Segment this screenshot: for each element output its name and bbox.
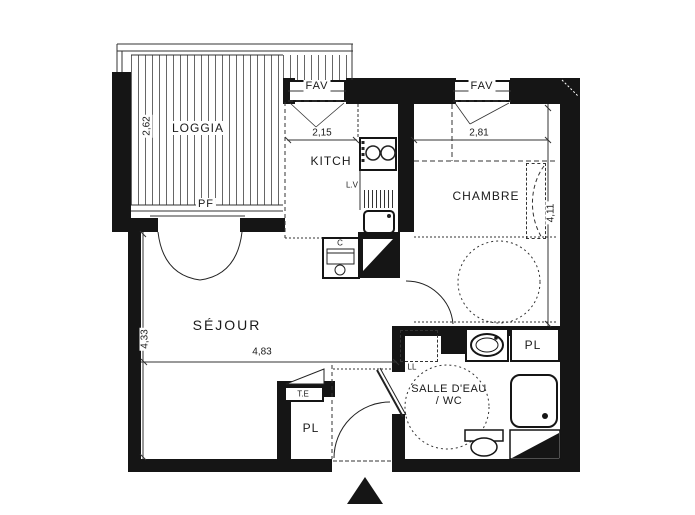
dim-kitchen-width: 2,15 xyxy=(312,128,331,139)
floor-plan: LOGGIA 2,62 PF FAV FAV 2,15 KITCH L.V 2,… xyxy=(0,0,695,515)
water-heater-icon xyxy=(327,249,354,275)
dim-bedroom-width: 2,81 xyxy=(469,128,488,139)
washbasin-icon xyxy=(471,334,503,356)
entrance-door-swing xyxy=(334,402,390,458)
stove-burners-icon xyxy=(362,141,396,162)
room-label-loggia: LOGGIA xyxy=(170,121,226,135)
water-heater-label: C xyxy=(337,239,343,248)
electrical-panel-flap xyxy=(286,369,324,384)
dim-bedroom-length: 4,11 xyxy=(546,202,557,225)
corner-miter-line xyxy=(562,80,578,96)
room-label-bedroom: CHAMBRE xyxy=(452,189,519,203)
window-bedroom-label: FAV xyxy=(469,80,496,92)
turning-circle-bedroom xyxy=(458,241,540,323)
electrical-panel-label: T.E xyxy=(297,390,309,399)
loggia-door-label: PF xyxy=(196,198,216,210)
sink-faucet-dot xyxy=(387,214,391,218)
window-kitchen-label: FAV xyxy=(304,80,331,92)
dim-living-width: 4,83 xyxy=(250,347,273,358)
plan-linework xyxy=(0,0,695,515)
shower-drain-dot xyxy=(542,413,548,419)
dishwasher-label: L.V xyxy=(346,181,358,190)
bathroom-door-leaf xyxy=(377,370,403,417)
bathroom-door-leaf-edge xyxy=(380,368,406,415)
closet-bathroom-label: PL xyxy=(525,338,542,352)
bathroom-label-line1: SALLE D'EAU xyxy=(411,383,486,395)
duct-bathroom-corner xyxy=(510,430,560,459)
loggia-door-swing-left xyxy=(158,232,200,280)
window-swings xyxy=(288,91,511,127)
bedroom-door-swing xyxy=(406,281,453,324)
dim-living-length: 4,33 xyxy=(140,327,151,350)
closet-entry-label: PL xyxy=(303,421,320,435)
wc-icon xyxy=(465,430,503,456)
bathroom-label-line2: / WC xyxy=(436,395,462,407)
room-label-kitchen: KITCH xyxy=(311,154,352,168)
duct-kitchen-triangle xyxy=(363,239,393,271)
room-label-living: SÉJOUR xyxy=(193,317,262,333)
loggia-door-swing-right xyxy=(200,232,242,280)
dim-loggia-depth: 2,62 xyxy=(142,114,153,137)
entrance-arrow xyxy=(347,477,383,504)
washing-machine-label: LL xyxy=(408,363,417,372)
